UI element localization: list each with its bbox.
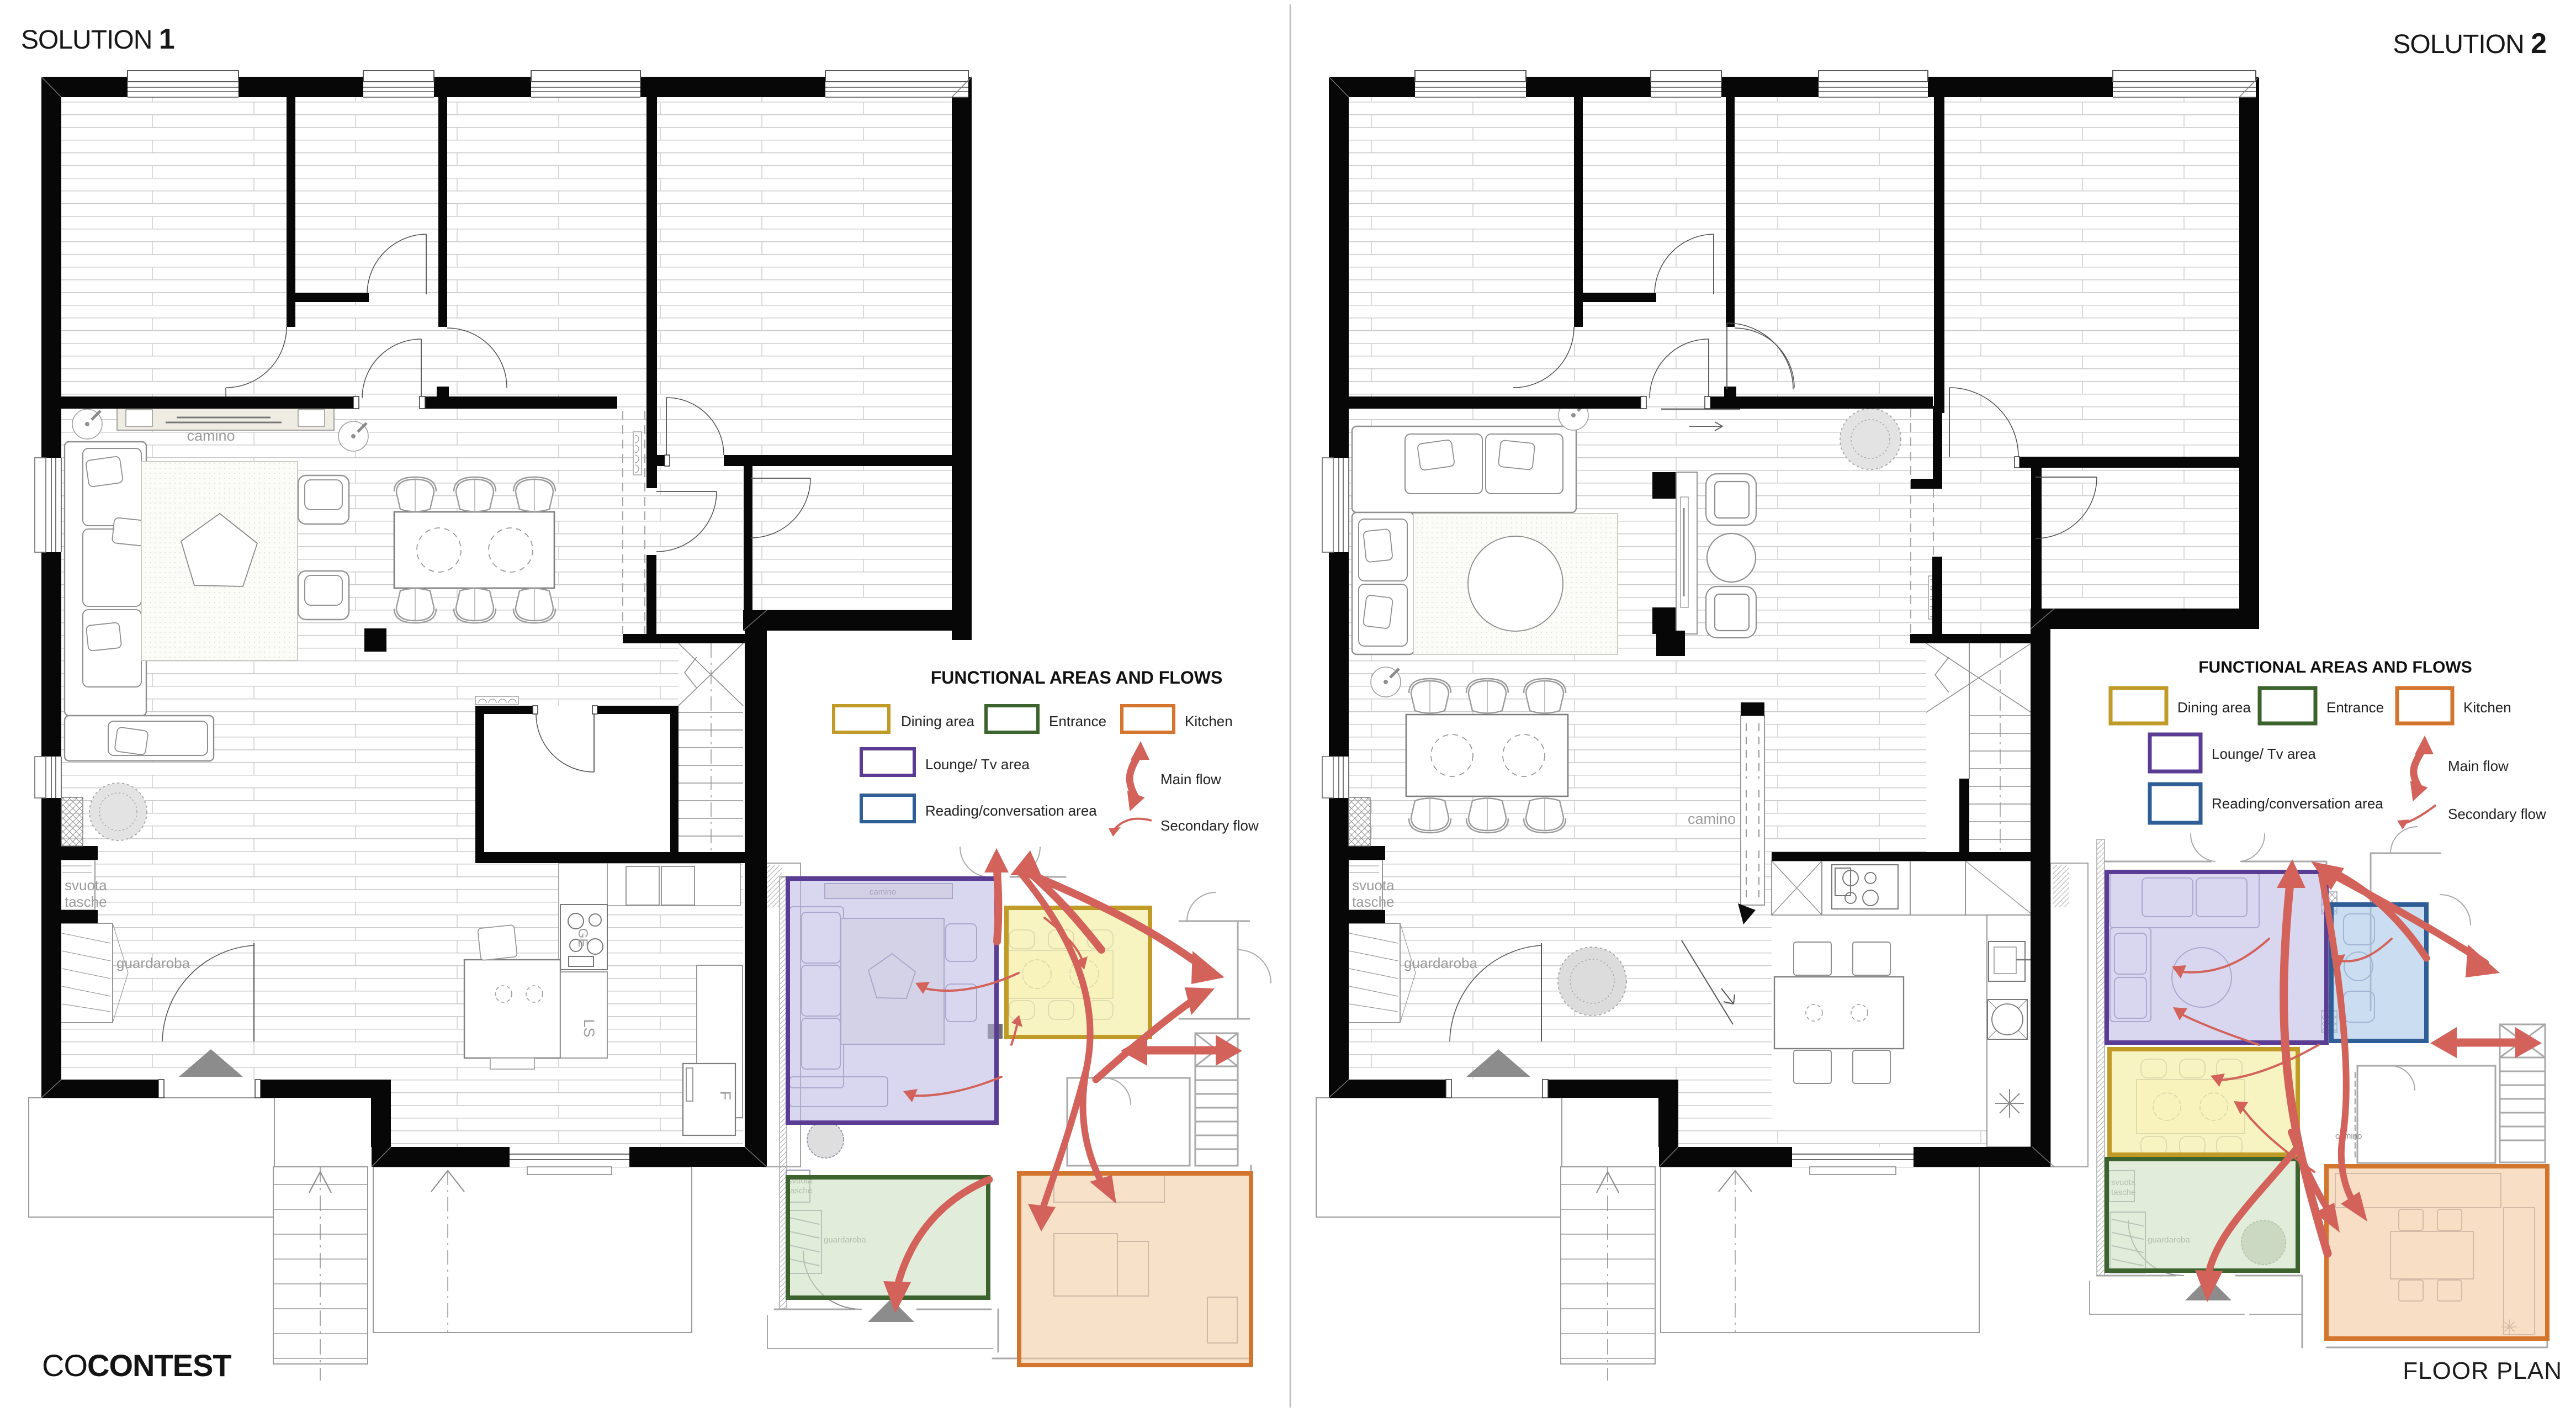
svg-text:Dining area: Dining area (901, 713, 975, 729)
svg-text:tasche: tasche (65, 893, 107, 910)
svg-text:SOLUTION 1: SOLUTION 1 (21, 23, 174, 55)
svg-text:GE: GE (575, 928, 590, 948)
svg-text:Main flow: Main flow (1160, 771, 1221, 787)
svg-text:FUNCTIONAL AREAS AND FLOWS: FUNCTIONAL AREAS AND FLOWS (931, 668, 1223, 688)
svg-text:guardaroba: guardaroba (116, 955, 190, 971)
svg-text:Reading/conversation area: Reading/conversation area (925, 802, 1097, 819)
svg-text:SOLUTION 2: SOLUTION 2 (2393, 28, 2546, 60)
svg-text:Kitchen: Kitchen (1185, 713, 1233, 729)
svg-text:Entrance: Entrance (1049, 713, 1106, 729)
svg-text:camino: camino (1688, 811, 1736, 827)
svg-text:Secondary flow: Secondary flow (1160, 817, 1259, 834)
svg-text:COCONTEST: COCONTEST (42, 1348, 231, 1383)
svg-text:Lounge/ Tv area: Lounge/ Tv area (2212, 745, 2316, 762)
svg-text:Lounge/ Tv area: Lounge/ Tv area (925, 756, 1030, 773)
svg-text:Entrance: Entrance (2326, 699, 2384, 716)
svg-text:FLOOR PLAN: FLOOR PLAN (2403, 1357, 2562, 1384)
svg-text:Reading/conversation area: Reading/conversation area (2212, 795, 2383, 812)
svg-text:Main flow: Main flow (2448, 758, 2509, 774)
svg-text:F: F (717, 1091, 734, 1101)
svg-text:svuota: svuota (1352, 877, 1395, 893)
svg-text:Dining area: Dining area (2177, 699, 2251, 716)
svg-text:Secondary flow: Secondary flow (2448, 806, 2546, 822)
svg-text:svuota: svuota (65, 877, 107, 893)
svg-text:guardaroba: guardaroba (1404, 955, 1478, 971)
svg-text:Kitchen: Kitchen (2463, 699, 2511, 716)
svg-text:camino: camino (187, 427, 235, 444)
svg-text:LS: LS (581, 1019, 597, 1037)
svg-text:tasche: tasche (1352, 893, 1395, 910)
svg-text:FUNCTIONAL AREAS AND FLOWS: FUNCTIONAL AREAS AND FLOWS (2198, 658, 2472, 676)
